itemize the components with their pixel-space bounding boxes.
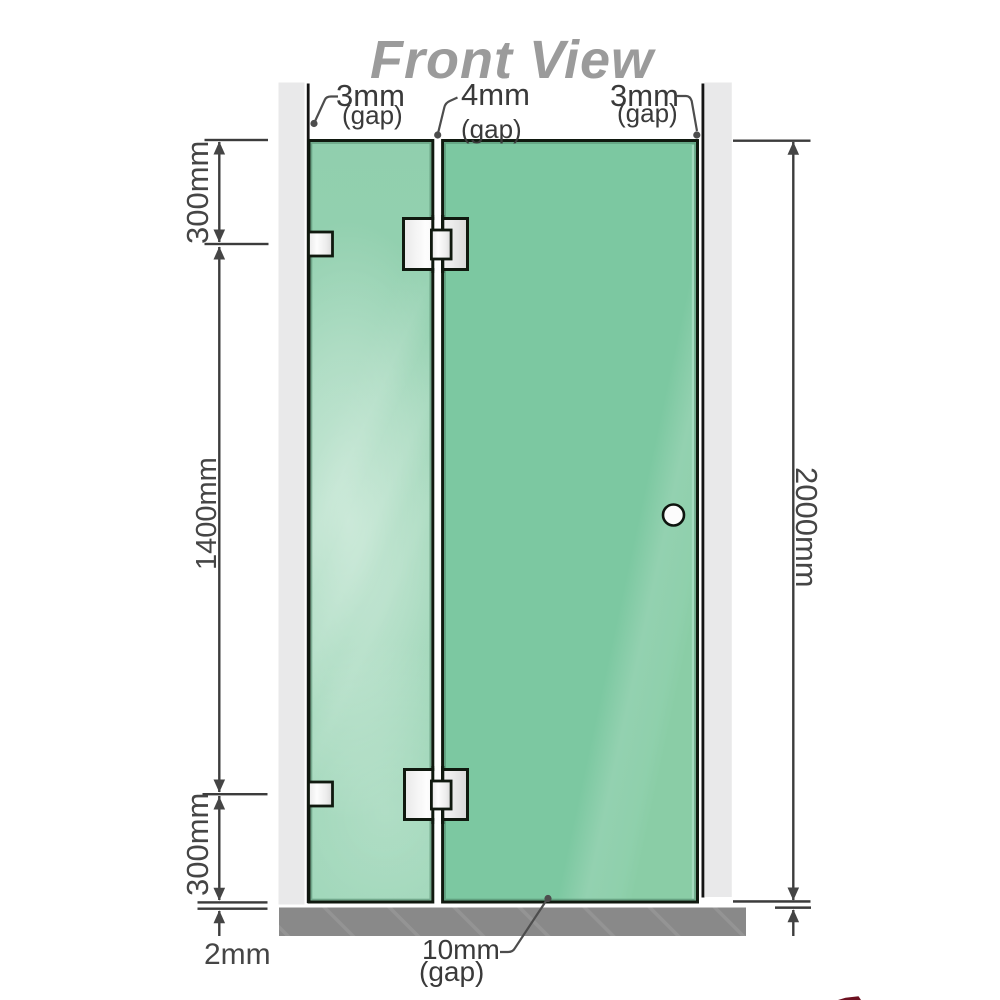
svg-text:2000mm: 2000mm bbox=[789, 467, 824, 588]
svg-text:(gap): (gap) bbox=[419, 956, 484, 987]
svg-text:2mm: 2mm bbox=[204, 938, 271, 971]
svg-text:300mm: 300mm bbox=[180, 793, 215, 896]
svg-text:4mm: 4mm bbox=[461, 77, 530, 112]
svg-text:(gap): (gap) bbox=[342, 100, 403, 130]
svg-text:(gap): (gap) bbox=[617, 98, 678, 128]
svg-text:1400mm: 1400mm bbox=[191, 457, 223, 570]
svg-text:(gap): (gap) bbox=[461, 114, 522, 144]
svg-text:300mm: 300mm bbox=[180, 141, 215, 244]
